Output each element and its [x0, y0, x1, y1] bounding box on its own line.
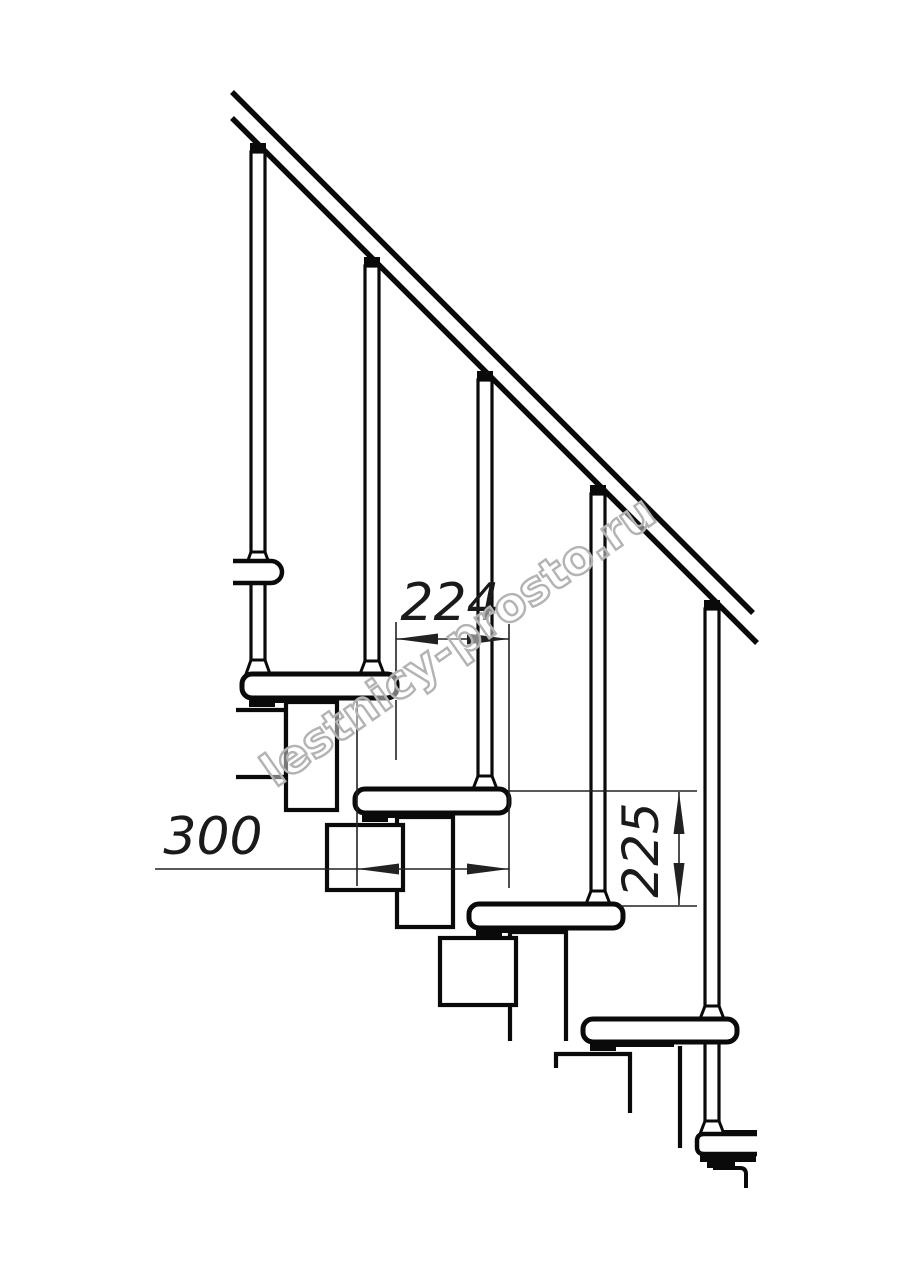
handrail — [232, 92, 757, 643]
staircase-technical-drawing: 224 300 225 lestnicy-prosto.ru — [0, 0, 914, 1280]
tread-2-support-tab — [249, 697, 275, 707]
baluster-1 — [246, 143, 270, 674]
tread-3-support-tab — [362, 812, 388, 822]
baluster-1-shaft — [251, 152, 265, 674]
baluster-2 — [360, 257, 384, 674]
module-h4 — [556, 1054, 630, 1113]
arrow-225-up — [674, 792, 685, 834]
floor-base-assembly — [697, 1132, 757, 1188]
upper-flight-tread-edge — [233, 561, 282, 583]
baluster-5-shaft — [705, 609, 719, 1135]
tread-3 — [355, 789, 509, 813]
floor-base-plate — [697, 1134, 757, 1154]
baluster-5 — [700, 600, 724, 1135]
dimension-label-300: 300 — [163, 807, 262, 867]
tread-3-support-strip — [388, 812, 446, 818]
baluster-2-shaft — [365, 266, 379, 674]
handrail-bottom-edge — [232, 118, 757, 643]
dimension-label-225: 225 — [612, 802, 670, 897]
arrow-225-down — [674, 863, 685, 905]
floor-cut-contour — [713, 1168, 746, 1188]
module-v3 — [397, 817, 453, 927]
tread-5-support-tab — [590, 1041, 616, 1051]
tread-5-support-strip — [616, 1041, 674, 1047]
floor-base-strip — [700, 1153, 756, 1162]
tread-5 — [583, 1019, 737, 1042]
tread-4-support-strip — [502, 927, 560, 933]
arrow-300-right — [467, 864, 509, 875]
module-v4 — [510, 932, 566, 1041]
tread-4 — [469, 904, 623, 928]
module-h3 — [440, 938, 516, 1005]
module-h2 — [327, 825, 403, 890]
tread-4-support-tab — [476, 927, 502, 937]
